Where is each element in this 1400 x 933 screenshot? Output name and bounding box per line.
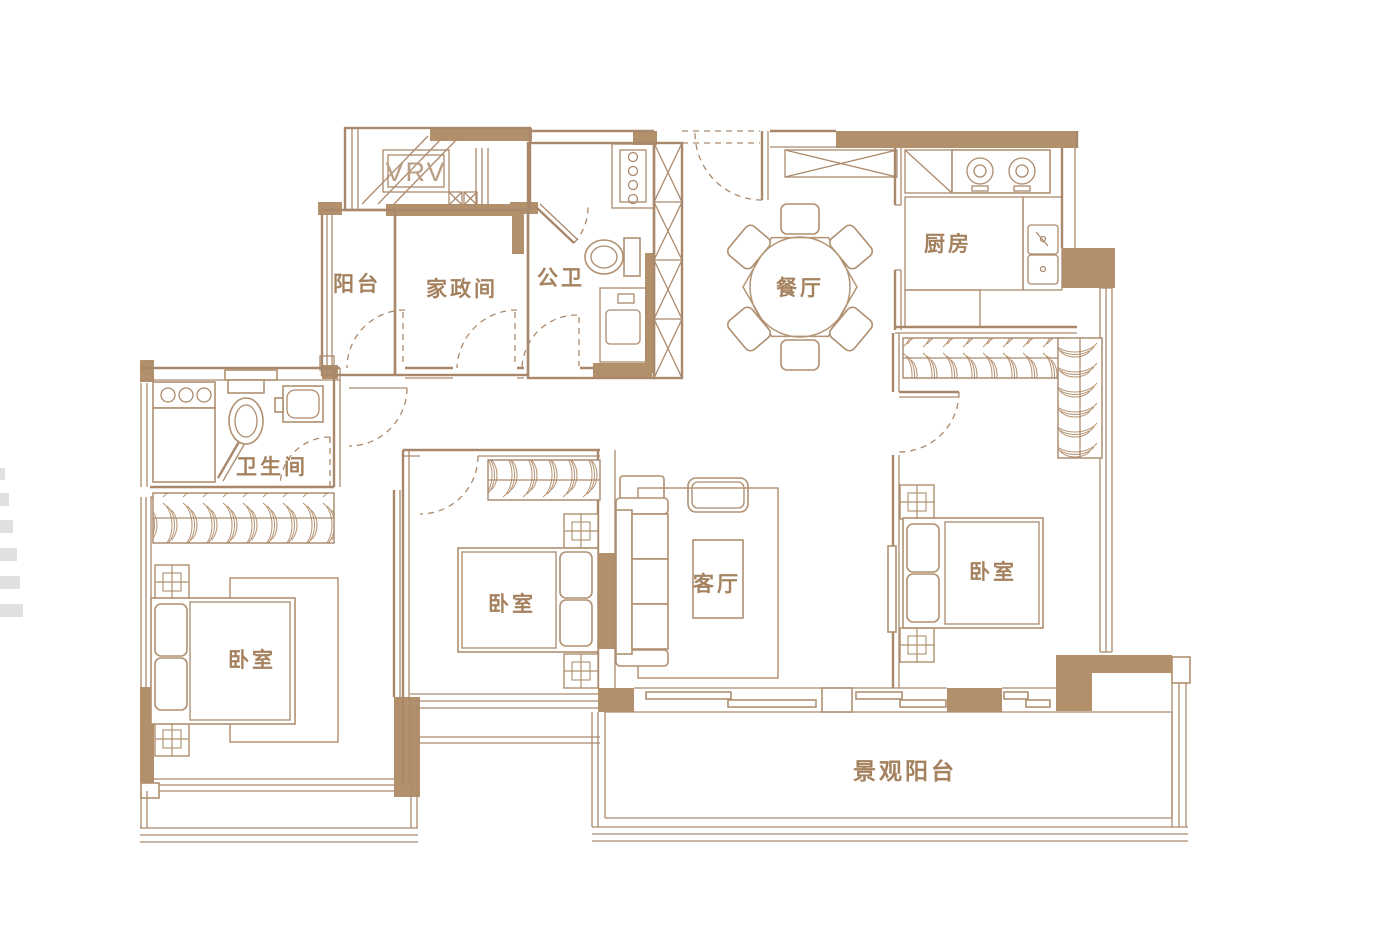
view-balcony-label: 景观阳台 bbox=[853, 758, 957, 784]
kitchen-label: 厨房 bbox=[924, 232, 972, 256]
room-bedroom-middle: 卧室 bbox=[403, 450, 615, 783]
living-label: 客厅 bbox=[693, 572, 741, 596]
bedroom-left-label: 卧室 bbox=[228, 648, 276, 672]
bathroom-label: 卫生间 bbox=[236, 455, 308, 479]
duct-shaft bbox=[654, 143, 682, 378]
room-balcony-small: 阳台 bbox=[320, 210, 405, 375]
balcony-small-label: 阳台 bbox=[333, 272, 381, 296]
guest-bath-label: 公卫 bbox=[537, 267, 585, 290]
room-bedroom-left: 卧室 bbox=[140, 487, 418, 842]
room-living: 客厅 bbox=[616, 476, 778, 678]
room-guest-bath: 公卫 bbox=[522, 143, 654, 378]
room-kitchen: 厨房 bbox=[895, 148, 1077, 333]
floor-plan: VRV 阳台 家政间 bbox=[0, 0, 1400, 933]
corridor-walls bbox=[349, 368, 682, 446]
bedroom-middle-label: 卧室 bbox=[488, 592, 536, 616]
room-laundry: 家政间 bbox=[395, 210, 528, 375]
floor-plan-svg: VRV 阳台 家政间 bbox=[0, 0, 1400, 933]
room-view-balcony: 景观阳台 bbox=[592, 657, 1190, 841]
room-dining: 餐厅 bbox=[725, 204, 874, 370]
laundry-label: 家政间 bbox=[426, 277, 498, 301]
bedroom-right-label: 卧室 bbox=[969, 560, 1017, 584]
room-bathroom: 卫生间 bbox=[140, 368, 340, 487]
dining-label: 餐厅 bbox=[776, 276, 824, 300]
vrv-label: VRV bbox=[385, 157, 446, 187]
watermark bbox=[0, 468, 23, 617]
room-bedroom-right: 卧室 bbox=[888, 333, 1102, 688]
